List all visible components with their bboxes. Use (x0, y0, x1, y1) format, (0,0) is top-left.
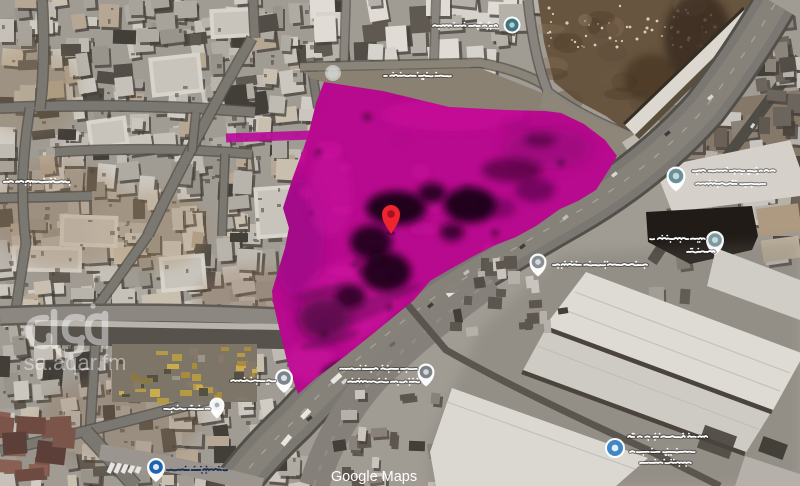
svg-text:Google Maps: Google Maps (331, 469, 417, 485)
svg-text:sa.aqar.fm: sa.aqar.fm (24, 350, 127, 375)
